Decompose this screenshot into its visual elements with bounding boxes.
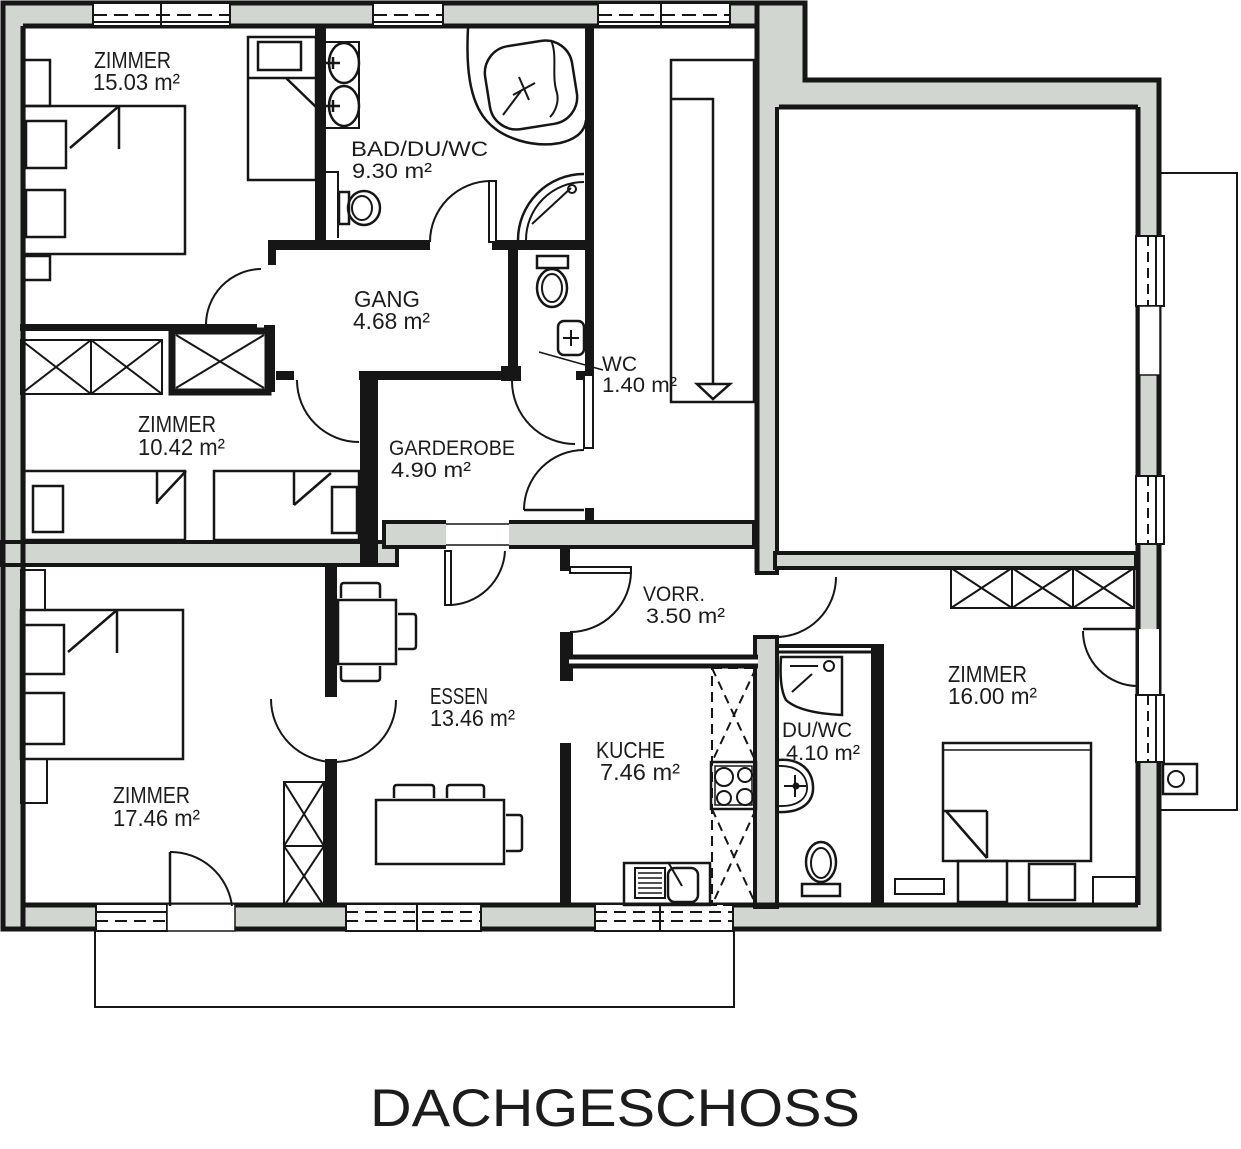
svg-text:1.40 m²: 1.40 m² bbox=[602, 373, 677, 397]
svg-text:4.90 m²: 4.90 m² bbox=[391, 458, 471, 482]
svg-text:VORR.: VORR. bbox=[643, 582, 705, 606]
svg-text:3.50 m²: 3.50 m² bbox=[646, 604, 725, 628]
svg-text:15.03 m²: 15.03 m² bbox=[93, 69, 180, 95]
svg-text:BAD/DU/WC: BAD/DU/WC bbox=[351, 137, 488, 161]
svg-text:GARDEROBE: GARDEROBE bbox=[389, 436, 515, 460]
svg-text:4.68 m²: 4.68 m² bbox=[353, 308, 430, 334]
svg-text:4.10 m²: 4.10 m² bbox=[786, 741, 860, 765]
svg-text:DACHGESCHOSS: DACHGESCHOSS bbox=[370, 1079, 860, 1138]
svg-text:DU/WC: DU/WC bbox=[782, 718, 852, 742]
svg-text:9.30 m²: 9.30 m² bbox=[352, 159, 432, 183]
svg-text:17.46 m²: 17.46 m² bbox=[113, 805, 200, 831]
svg-text:16.00 m²: 16.00 m² bbox=[948, 683, 1037, 709]
svg-text:10.42 m²: 10.42 m² bbox=[138, 434, 225, 460]
svg-text:13.46 m²: 13.46 m² bbox=[430, 705, 515, 731]
svg-text:7.46 m²: 7.46 m² bbox=[600, 759, 680, 785]
